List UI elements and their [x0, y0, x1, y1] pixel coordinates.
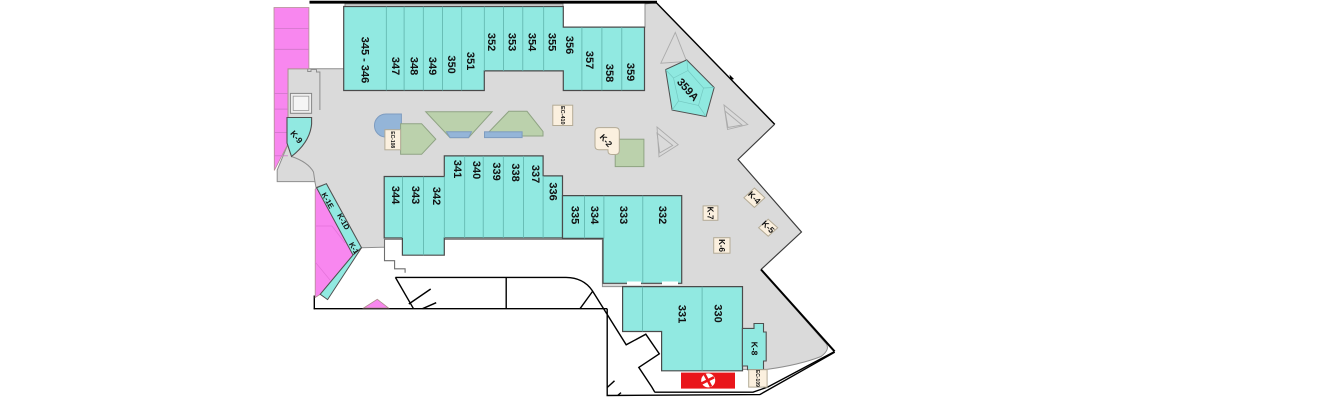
svg-text:359: 359 [624, 63, 636, 81]
svg-text:331: 331 [676, 305, 688, 323]
svg-text:332: 332 [656, 206, 668, 224]
svg-text:355: 355 [546, 33, 558, 51]
svg-text:336: 336 [547, 182, 559, 200]
svg-text:EC-109: EC-109 [754, 370, 760, 387]
svg-text:334: 334 [588, 206, 600, 225]
svg-text:330: 330 [712, 304, 724, 322]
svg-text:EC-410: EC-410 [559, 106, 565, 125]
svg-text:EC-108: EC-108 [389, 131, 395, 148]
svg-text:350: 350 [445, 55, 457, 73]
svg-text:343: 343 [409, 186, 421, 204]
svg-text:356: 356 [563, 36, 575, 54]
svg-text:333: 333 [617, 206, 629, 224]
svg-text:342: 342 [430, 187, 442, 205]
svg-text:357: 357 [583, 51, 595, 69]
svg-text:352: 352 [485, 33, 497, 51]
svg-text:339: 339 [490, 162, 502, 180]
svg-text:337: 337 [529, 165, 541, 183]
svg-text:354: 354 [526, 33, 538, 52]
svg-text:344: 344 [389, 186, 401, 205]
svg-text:353: 353 [506, 33, 518, 51]
svg-text:K-7: K-7 [706, 207, 715, 220]
svg-text:K-6: K-6 [717, 239, 726, 252]
svg-text:341: 341 [451, 160, 463, 178]
svg-text:348: 348 [408, 57, 420, 75]
svg-text:345 - 346: 345 - 346 [359, 37, 371, 83]
svg-text:358: 358 [603, 64, 615, 82]
svg-text:K-8: K-8 [750, 342, 760, 356]
svg-text:351: 351 [464, 52, 476, 70]
svg-text:349: 349 [426, 57, 438, 75]
svg-text:338: 338 [509, 163, 521, 181]
svg-text:340: 340 [470, 161, 482, 179]
svg-text:335: 335 [569, 206, 581, 224]
svg-text:347: 347 [389, 57, 401, 75]
